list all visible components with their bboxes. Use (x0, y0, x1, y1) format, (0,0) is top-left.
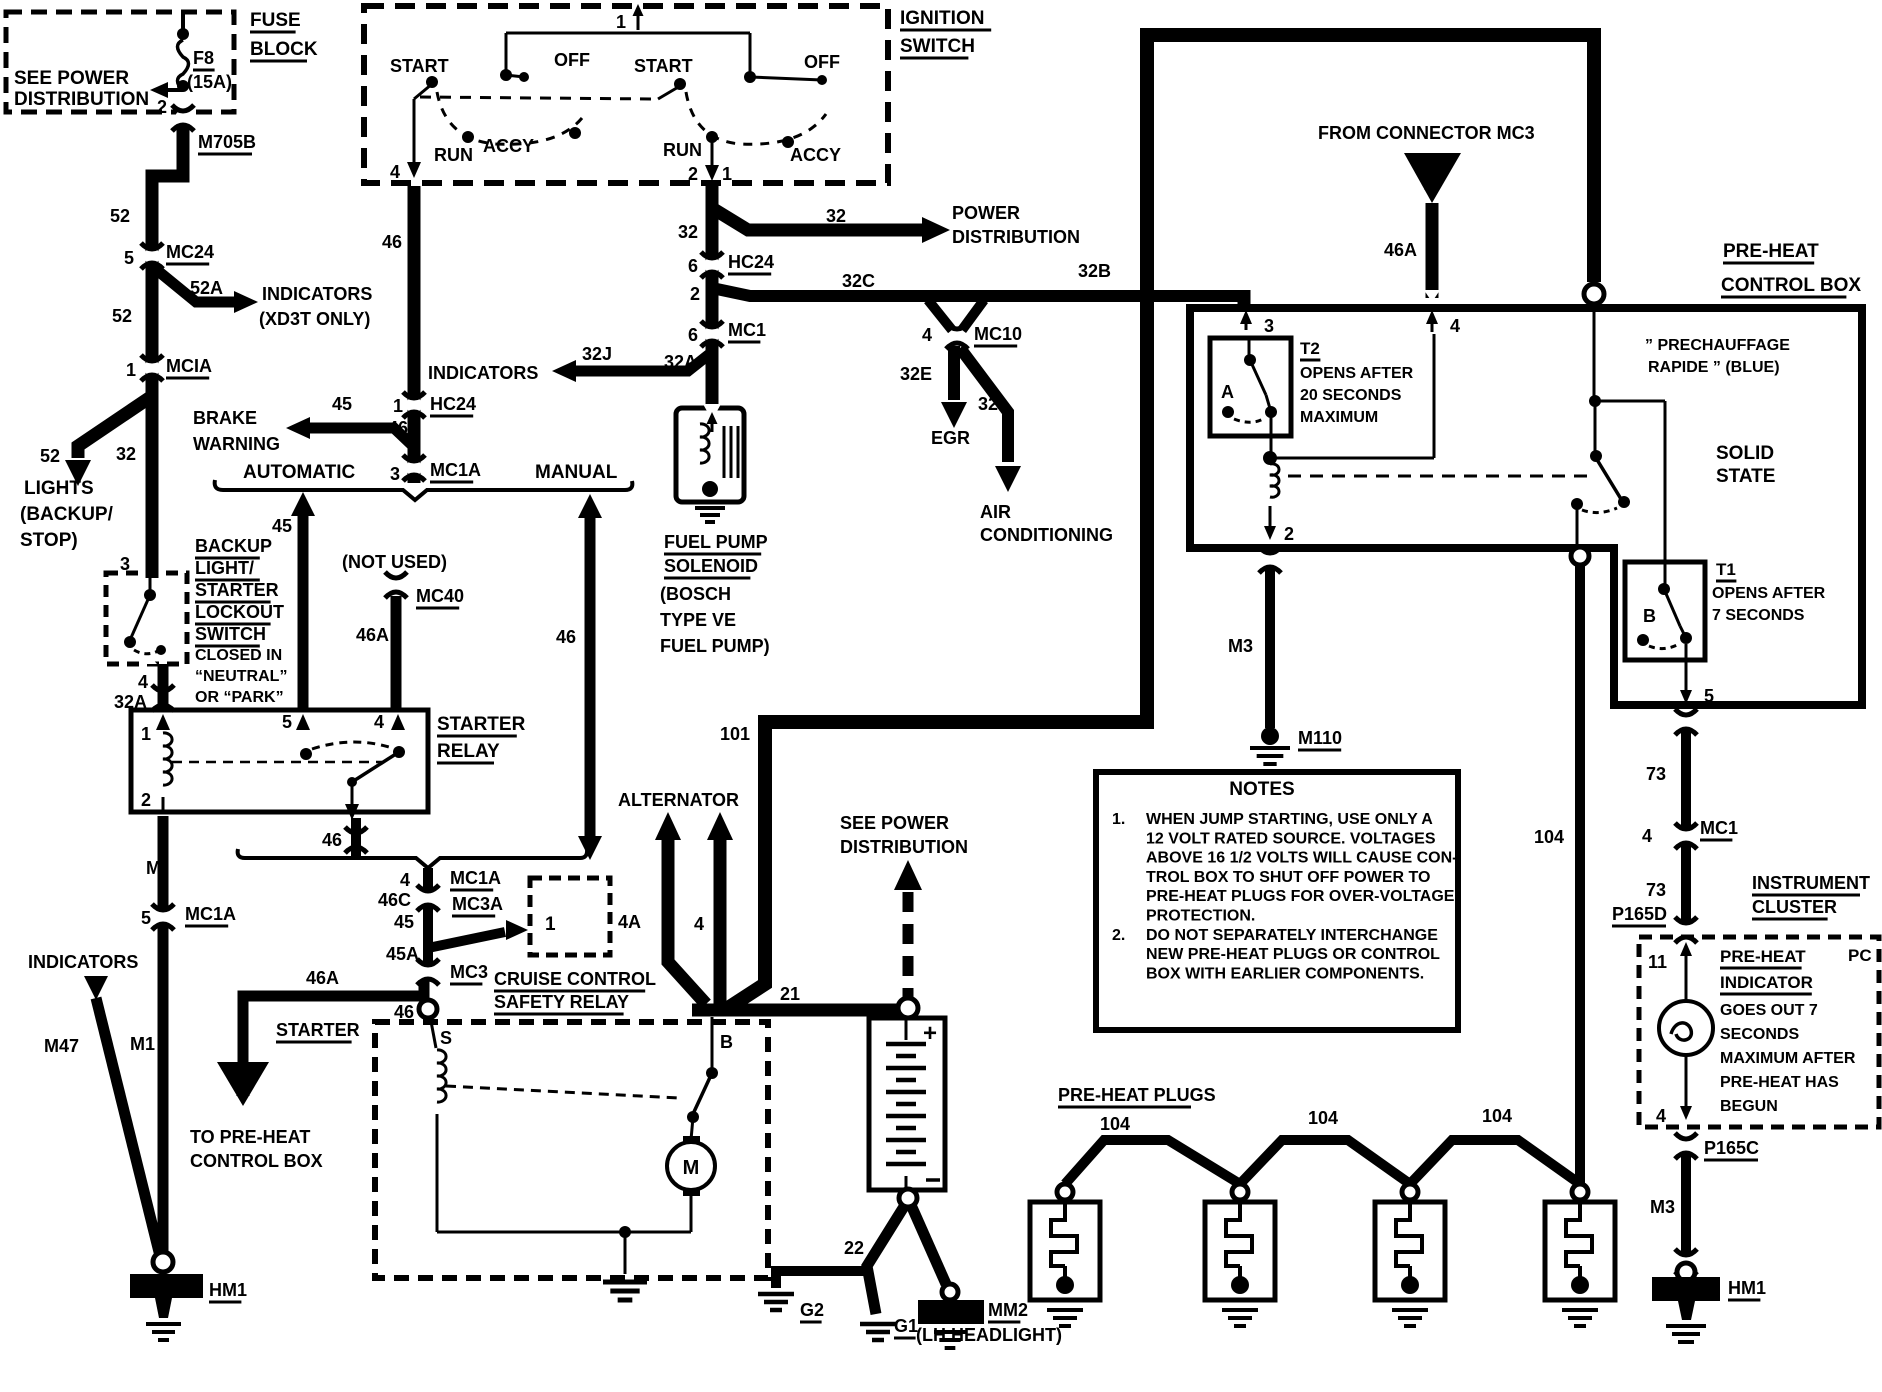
svg-text:4: 4 (390, 162, 400, 182)
svg-text:G1: G1 (894, 1316, 918, 1336)
svg-text:(15A): (15A) (187, 72, 232, 92)
svg-text:45: 45 (394, 912, 414, 932)
svg-text:52: 52 (112, 306, 132, 326)
svg-text:45: 45 (272, 516, 292, 536)
svg-text:INDICATORS: INDICATORS (28, 952, 138, 972)
svg-text:4: 4 (138, 672, 148, 692)
svg-text:32C: 32C (842, 271, 875, 291)
svg-text:1: 1 (616, 12, 626, 32)
svg-text:HC24: HC24 (430, 394, 476, 414)
svg-text:4: 4 (1642, 826, 1652, 846)
svg-text:F8: F8 (193, 48, 214, 68)
svg-text:SWITCH: SWITCH (195, 624, 266, 644)
svg-text:32: 32 (116, 444, 136, 464)
svg-text:CLOSED IN: CLOSED IN (195, 647, 282, 664)
svg-text:SOLENOID: SOLENOID (664, 556, 758, 576)
svg-text:RUN: RUN (663, 140, 702, 160)
svg-text:32: 32 (678, 222, 698, 242)
svg-text:B: B (1643, 606, 1656, 626)
svg-text:HM1: HM1 (209, 1280, 247, 1300)
svg-text:DISTRIBUTION: DISTRIBUTION (952, 227, 1080, 247)
svg-text:LOCKOUT: LOCKOUT (195, 602, 284, 622)
svg-text:MAXIMUM AFTER: MAXIMUM AFTER (1720, 1050, 1856, 1067)
svg-text:P165D: P165D (1612, 904, 1667, 924)
svg-text:STARTER: STARTER (276, 1020, 360, 1040)
svg-text:MC24: MC24 (166, 242, 214, 262)
svg-text:OFF: OFF (804, 52, 840, 72)
svg-text:S: S (440, 1028, 452, 1048)
svg-text:104: 104 (1482, 1106, 1512, 1126)
svg-text:A: A (1221, 382, 1234, 402)
svg-text:T1: T1 (1716, 560, 1736, 579)
svg-text:52: 52 (110, 206, 130, 226)
svg-text:STARTER: STARTER (195, 580, 279, 600)
svg-text:BACKUP: BACKUP (195, 536, 272, 556)
svg-text:INDICATOR: INDICATOR (1720, 973, 1813, 992)
svg-text:WARNING: WARNING (193, 434, 280, 454)
svg-text:BLOCK: BLOCK (250, 39, 318, 60)
svg-text:(LH HEADLIGHT): (LH HEADLIGHT) (916, 1325, 1062, 1345)
svg-text:EGR: EGR (931, 428, 970, 448)
svg-text:FUSE: FUSE (250, 10, 301, 31)
svg-text:46A: 46A (306, 968, 339, 988)
svg-text:MAXIMUM: MAXIMUM (1300, 409, 1378, 426)
svg-text:46: 46 (322, 830, 342, 850)
svg-text:PRE-HEAT HAS: PRE-HEAT HAS (1720, 1074, 1839, 1091)
svg-text:HC24: HC24 (728, 252, 774, 272)
svg-text:PRE-HEAT PLUGS: PRE-HEAT PLUGS (1058, 1085, 1216, 1105)
svg-text:2.: 2. (1112, 927, 1125, 944)
svg-text:SECONDS: SECONDS (1720, 1026, 1799, 1043)
svg-text:CONTROL BOX: CONTROL BOX (1721, 275, 1861, 296)
svg-text:AUTOMATIC: AUTOMATIC (243, 462, 356, 483)
svg-text:73: 73 (1646, 880, 1666, 900)
svg-text:1: 1 (545, 914, 556, 935)
svg-text:A: A (1424, 173, 1438, 195)
svg-text:4: 4 (694, 914, 704, 934)
svg-text:MC1A: MC1A (450, 868, 501, 888)
svg-text:CRUISE CONTROL: CRUISE CONTROL (494, 969, 656, 989)
svg-text:HM1: HM1 (1728, 1278, 1766, 1298)
svg-text:52: 52 (40, 446, 60, 466)
svg-text:M110: M110 (1298, 728, 1342, 748)
svg-text:4A: 4A (618, 912, 641, 932)
svg-text:M: M (683, 1157, 700, 1179)
svg-text:20 SECONDS: 20 SECONDS (1300, 387, 1402, 404)
svg-text:FUEL PUMP): FUEL PUMP) (660, 636, 770, 656)
svg-text:MC1: MC1 (1700, 818, 1738, 838)
svg-text:PC: PC (1848, 946, 1872, 965)
svg-text:6: 6 (688, 256, 698, 276)
svg-text:OR “PARK”: OR “PARK” (195, 689, 284, 706)
svg-text:BOX WITH EARLIER COMPONENTS.: BOX WITH EARLIER COMPONENTS. (1146, 965, 1424, 982)
svg-text:73: 73 (1646, 764, 1666, 784)
svg-text:5: 5 (141, 908, 151, 928)
svg-text:RELAY: RELAY (437, 741, 500, 762)
svg-text:3: 3 (390, 464, 400, 484)
svg-text:MC10: MC10 (974, 324, 1022, 344)
svg-text:4: 4 (374, 712, 384, 732)
svg-text:STARTER: STARTER (437, 714, 526, 735)
svg-text:1: 1 (141, 724, 151, 744)
svg-text:MC3: MC3 (450, 962, 488, 982)
svg-text:MC3A: MC3A (452, 894, 503, 914)
svg-text:START: START (634, 56, 693, 76)
svg-text:STOP): STOP) (20, 530, 78, 551)
svg-text:104: 104 (1534, 827, 1564, 847)
svg-text:P165C: P165C (1704, 1138, 1759, 1158)
svg-text:SOLID: SOLID (1716, 443, 1774, 464)
svg-text:INDICATORS: INDICATORS (428, 363, 538, 383)
svg-text:1: 1 (393, 396, 403, 416)
svg-text:ABOVE 16 1/2 VOLTS WILL CAUSE: ABOVE 16 1/2 VOLTS WILL CAUSE CON- (1146, 850, 1457, 867)
svg-text:32J: 32J (582, 344, 612, 364)
svg-text:SEE POWER: SEE POWER (14, 68, 129, 89)
svg-text:NEW PRE-HEAT PLUGS OR CONTROL: NEW PRE-HEAT PLUGS OR CONTROL (1146, 946, 1440, 963)
svg-text:B: B (720, 1032, 733, 1052)
svg-text:WHEN JUMP STARTING, USE ONLY A: WHEN JUMP STARTING, USE ONLY A (1146, 811, 1433, 828)
svg-text:PRE-HEAT: PRE-HEAT (1723, 241, 1819, 262)
svg-text:2: 2 (688, 164, 698, 184)
svg-text:CONDITIONING: CONDITIONING (980, 525, 1113, 545)
svg-text:4: 4 (1656, 1106, 1666, 1126)
svg-text:INSTRUMENT: INSTRUMENT (1752, 873, 1870, 893)
svg-text:DISTRIBUTION: DISTRIBUTION (14, 89, 149, 110)
svg-text:2: 2 (690, 284, 700, 304)
svg-text:2: 2 (141, 790, 151, 810)
svg-text:46C: 46C (378, 890, 411, 910)
svg-text:5: 5 (282, 712, 292, 732)
svg-text:TYPE VE: TYPE VE (660, 610, 736, 630)
svg-text:45: 45 (332, 394, 352, 414)
svg-text:SAFETY RELAY: SAFETY RELAY (494, 992, 629, 1012)
svg-text:MM2: MM2 (988, 1300, 1028, 1320)
svg-text:” PRECHAUFFAGE: ” PRECHAUFFAGE (1645, 337, 1790, 354)
svg-text:STATE: STATE (1716, 466, 1775, 487)
svg-text:OPENS AFTER: OPENS AFTER (1300, 365, 1414, 382)
svg-text:PROTECTION.: PROTECTION. (1146, 908, 1255, 925)
svg-text:(NOT USED): (NOT USED) (342, 552, 447, 572)
svg-text:M1: M1 (130, 1034, 155, 1054)
svg-text:6: 6 (688, 325, 698, 345)
svg-text:46A: 46A (356, 625, 389, 645)
svg-text:104: 104 (1100, 1114, 1130, 1134)
svg-text:M705B: M705B (198, 132, 256, 152)
svg-text:FUEL PUMP: FUEL PUMP (664, 532, 768, 552)
svg-text:(XD3T ONLY): (XD3T ONLY) (259, 309, 370, 329)
svg-text:3: 3 (1264, 316, 1274, 336)
svg-text:AIR: AIR (980, 502, 1011, 522)
svg-text:45A: 45A (386, 944, 419, 964)
svg-text:SEE POWER: SEE POWER (840, 813, 949, 833)
svg-text:12 VOLT RATED SOURCE. VOLTAGE: 12 VOLT RATED SOURCE. VOLTAGES (1146, 830, 1436, 847)
svg-text:FROM CONNECTOR MC3: FROM CONNECTOR MC3 (1318, 123, 1535, 143)
svg-text:46: 46 (556, 627, 576, 647)
svg-text:LIGHTS: LIGHTS (24, 478, 94, 499)
svg-text:ACCY: ACCY (483, 136, 534, 156)
svg-text:IGNITION: IGNITION (900, 8, 984, 29)
svg-text:DISTRIBUTION: DISTRIBUTION (840, 837, 968, 857)
svg-text:MCIA: MCIA (166, 356, 212, 376)
svg-text:11: 11 (1648, 952, 1667, 972)
svg-text:DO NOT SEPARATELY INTERCHANGE: DO NOT SEPARATELY INTERCHANGE (1146, 927, 1438, 944)
svg-text:(BOSCH: (BOSCH (660, 584, 731, 604)
svg-text:GOES OUT 7: GOES OUT 7 (1720, 1002, 1818, 1019)
svg-text:5: 5 (1704, 686, 1714, 706)
svg-text:101: 101 (720, 724, 750, 744)
svg-text:32E: 32E (900, 364, 932, 384)
svg-text:104: 104 (1308, 1108, 1338, 1128)
svg-text:ACCY: ACCY (790, 145, 841, 165)
svg-text:2: 2 (157, 97, 167, 117)
svg-text:A: A (236, 1079, 250, 1101)
svg-text:MC1A: MC1A (185, 904, 236, 924)
svg-text:RUN: RUN (434, 145, 473, 165)
svg-text:2: 2 (1284, 524, 1294, 544)
svg-text:M3: M3 (1650, 1197, 1675, 1217)
svg-text:PRE-HEAT PLUGS FOR OVER-VOLTAG: PRE-HEAT PLUGS FOR OVER-VOLTAGE (1146, 888, 1455, 905)
svg-text:OFF: OFF (554, 50, 590, 70)
svg-text:BRAKE: BRAKE (193, 408, 257, 428)
svg-text:21: 21 (780, 984, 800, 1004)
svg-text:OPENS AFTER: OPENS AFTER (1712, 585, 1826, 602)
svg-text:4: 4 (1450, 316, 1460, 336)
svg-text:MC1A: MC1A (430, 460, 481, 480)
svg-text:“NEUTRAL”: “NEUTRAL” (195, 668, 287, 685)
svg-text:MANUAL: MANUAL (535, 462, 618, 483)
svg-text:46A: 46A (1384, 240, 1417, 260)
svg-text:SWITCH: SWITCH (900, 36, 975, 57)
svg-text:32: 32 (978, 394, 998, 414)
svg-text:MC40: MC40 (416, 586, 464, 606)
svg-text:32: 32 (826, 206, 846, 226)
svg-text:MC1: MC1 (728, 320, 766, 340)
svg-text:52A: 52A (190, 278, 223, 298)
svg-text:22: 22 (844, 1238, 864, 1258)
svg-text:T2: T2 (1300, 339, 1320, 358)
svg-text:INDICATORS: INDICATORS (262, 284, 372, 304)
svg-text:ALTERNATOR: ALTERNATOR (618, 790, 739, 810)
svg-text:4: 4 (400, 870, 410, 890)
svg-text:TO PRE-HEAT: TO PRE-HEAT (190, 1127, 310, 1147)
svg-text:START: START (390, 56, 449, 76)
svg-text:5: 5 (124, 248, 134, 268)
svg-text:M3: M3 (1228, 636, 1253, 656)
svg-text:(BACKUP/: (BACKUP/ (20, 504, 114, 525)
svg-text:CONTROL BOX: CONTROL BOX (190, 1151, 323, 1171)
svg-text:32B: 32B (1078, 261, 1111, 281)
svg-text:G2: G2 (800, 1300, 824, 1320)
svg-text:46: 46 (382, 232, 402, 252)
svg-text:4: 4 (922, 325, 932, 345)
svg-text:1: 1 (722, 164, 732, 184)
svg-text:TROL BOX TO SHUT OFF POWER TO: TROL BOX TO SHUT OFF POWER TO (1146, 869, 1430, 886)
svg-text:RAPIDE ” (BLUE): RAPIDE ” (BLUE) (1648, 359, 1780, 376)
svg-text:NOTES: NOTES (1229, 779, 1294, 800)
svg-text:CLUSTER: CLUSTER (1752, 897, 1837, 917)
svg-text:1: 1 (126, 360, 136, 380)
svg-text:LIGHT/: LIGHT/ (195, 558, 254, 578)
svg-text:46: 46 (388, 418, 408, 438)
svg-text:M47: M47 (44, 1036, 79, 1056)
svg-text:POWER: POWER (952, 203, 1020, 223)
svg-text:7 SECONDS: 7 SECONDS (1712, 607, 1805, 624)
svg-text:1.: 1. (1112, 811, 1125, 828)
svg-text:BEGUN: BEGUN (1720, 1098, 1778, 1115)
svg-text:PRE-HEAT: PRE-HEAT (1720, 947, 1806, 966)
